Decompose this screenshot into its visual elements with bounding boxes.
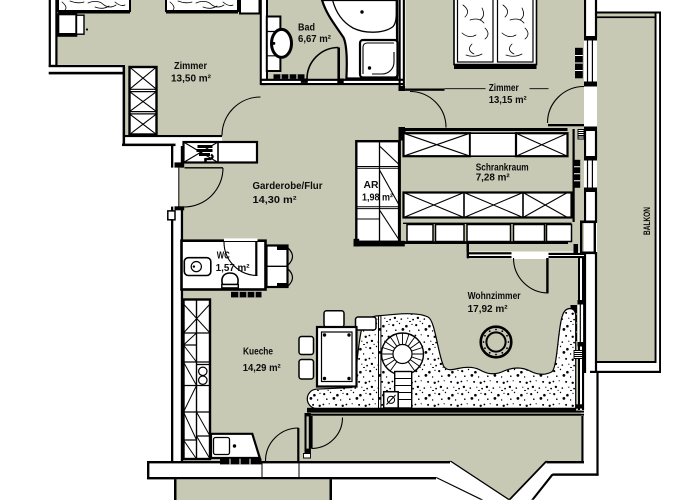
svg-text:17,92 m²: 17,92 m² [468, 304, 509, 315]
svg-text:1,57 m²: 1,57 m² [216, 263, 251, 274]
svg-text:Wohnzimmer: Wohnzimmer [468, 291, 521, 302]
svg-text:Bad: Bad [298, 23, 315, 34]
svg-text:Zimmer: Zimmer [174, 61, 207, 72]
svg-text:1,98 m²: 1,98 m² [362, 193, 394, 204]
svg-text:Garderobe/Flur: Garderobe/Flur [253, 181, 323, 192]
svg-text:6,67 m²: 6,67 m² [298, 34, 332, 45]
svg-text:AR: AR [364, 180, 380, 191]
svg-text:7,28 m²: 7,28 m² [476, 173, 511, 184]
svg-text:Zimmer: Zimmer [489, 83, 519, 94]
svg-text:BALKON: BALKON [642, 207, 652, 235]
svg-text:13,50 m²: 13,50 m² [171, 74, 212, 85]
svg-text:13,15 m²: 13,15 m² [489, 95, 528, 106]
svg-text:Kueche: Kueche [243, 347, 273, 358]
svg-text:14,30 m²: 14,30 m² [253, 195, 298, 206]
svg-text:14,29 m²: 14,29 m² [243, 363, 282, 374]
svg-text:WC: WC [217, 251, 230, 262]
